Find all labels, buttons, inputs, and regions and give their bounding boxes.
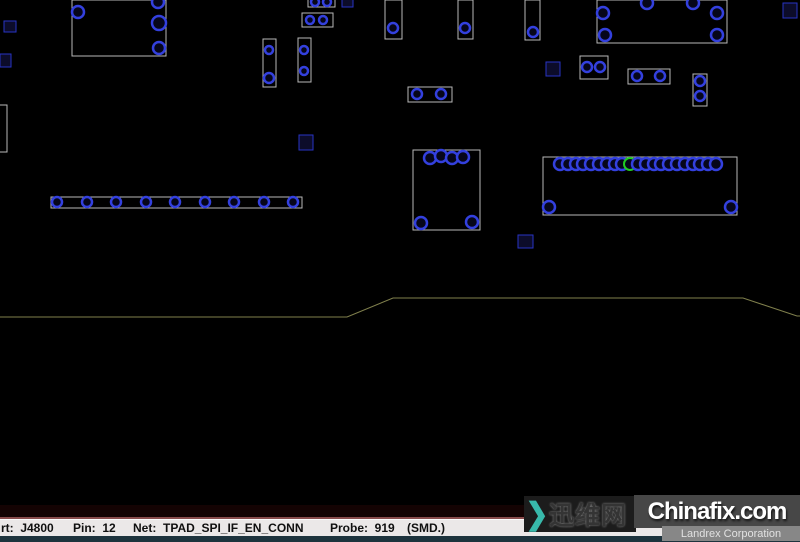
component-outline[interactable] [783,3,797,18]
component-outline[interactable] [0,105,7,152]
solder-pad[interactable] [655,71,665,81]
solder-pad[interactable] [306,16,314,24]
component-outline[interactable] [342,0,353,7]
solder-pad[interactable] [288,197,298,207]
solder-pad[interactable] [711,29,723,41]
board-canvas[interactable] [0,0,800,517]
solder-pad[interactable] [152,16,166,30]
solder-pad[interactable] [311,0,319,6]
board-edge-outline [0,298,800,317]
solder-pad[interactable] [597,7,609,19]
solder-pad[interactable] [543,201,555,213]
status-part: rt: J4800 [1,521,54,535]
solder-pad[interactable] [710,158,722,170]
component-outline[interactable] [518,235,533,248]
solder-pad[interactable] [72,6,84,18]
solder-pad[interactable] [595,62,605,72]
solder-pad[interactable] [319,16,327,24]
component-outline[interactable] [0,54,11,67]
solder-pad[interactable] [111,197,121,207]
solder-pad[interactable] [641,0,653,9]
solder-pad[interactable] [582,62,592,72]
status-pin: Pin: 12 [73,521,116,535]
component-outline[interactable] [299,135,313,150]
chevron-right-icon: ❯ [525,496,549,532]
solder-pad[interactable] [170,197,180,207]
watermark-xunwei-text: 迅维网 [549,496,627,532]
component-outline[interactable] [546,62,560,76]
solder-pad[interactable] [323,0,331,6]
solder-pad[interactable] [460,23,470,33]
watermark-chinafix: Chinafix.com [634,495,800,528]
solder-pad[interactable] [141,197,151,207]
component-outline[interactable] [597,0,727,43]
status-mount-type: (SMD.) [407,521,445,535]
solder-pad[interactable] [412,89,422,99]
watermark-xunwei: ❯ 迅维网 [524,496,636,532]
watermark-landrex: Landrex Corporation [662,526,800,541]
solder-pad[interactable] [687,0,699,9]
watermark-landrex-text: Landrex Corporation [681,528,781,540]
solder-pad[interactable] [711,7,723,19]
solder-pad[interactable] [264,73,274,83]
solder-pad[interactable] [632,71,642,81]
solder-pad[interactable] [265,46,273,54]
solder-pad[interactable] [436,89,446,99]
component-outline[interactable] [4,21,16,32]
watermark-chinafix-text: Chinafix.com [648,498,787,526]
status-net: Net: TPAD_SPI_IF_EN_CONN [133,521,303,535]
solder-pad[interactable] [153,42,165,54]
solder-pad[interactable] [725,201,737,213]
solder-pad[interactable] [466,216,478,228]
solder-pad[interactable] [82,197,92,207]
boardviewer-window: rt: J4800 Pin: 12 Net: TPAD_SPI_IF_EN_CO… [0,0,800,542]
solder-pad[interactable] [259,197,269,207]
solder-pad[interactable] [52,197,62,207]
solder-pad[interactable] [599,29,611,41]
solder-pad[interactable] [229,197,239,207]
solder-pad[interactable] [695,76,705,86]
solder-pad[interactable] [388,23,398,33]
board-view[interactable] [0,0,800,517]
solder-pad[interactable] [415,217,427,229]
solder-pad[interactable] [152,0,164,8]
solder-pad[interactable] [300,46,308,54]
solder-pad[interactable] [528,27,538,37]
solder-pad[interactable] [457,151,469,163]
solder-pad[interactable] [300,67,308,75]
status-probe: Probe: 919 [330,521,395,535]
solder-pad[interactable] [695,91,705,101]
solder-pad[interactable] [200,197,210,207]
